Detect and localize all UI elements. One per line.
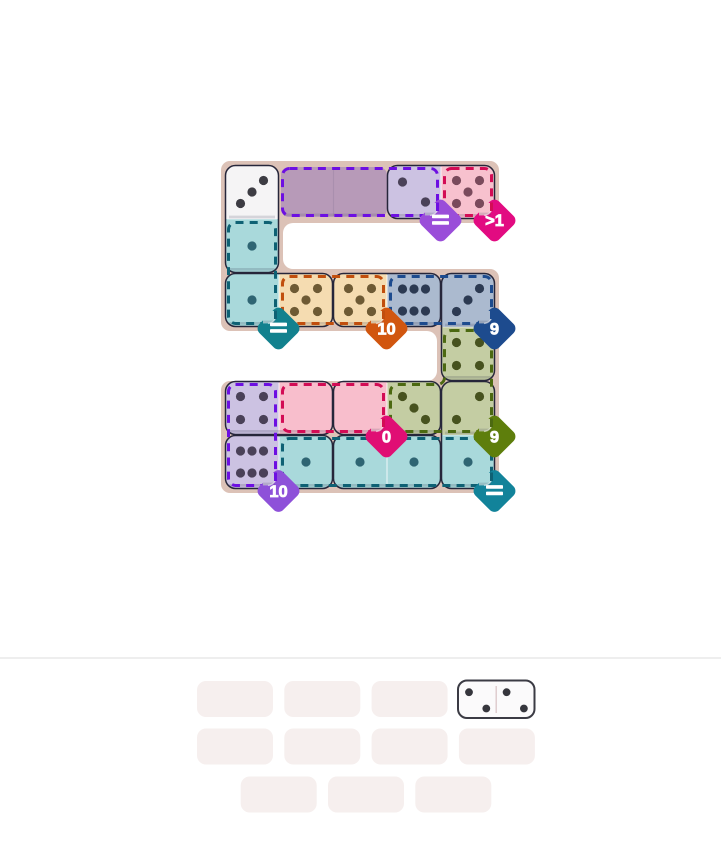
svg-text:0: 0 xyxy=(382,429,391,447)
svg-text:>1: >1 xyxy=(485,212,504,230)
svg-text:9: 9 xyxy=(490,429,499,447)
svg-text:10: 10 xyxy=(377,321,395,339)
svg-text:9: 9 xyxy=(490,321,499,339)
svg-text:10: 10 xyxy=(269,483,287,501)
